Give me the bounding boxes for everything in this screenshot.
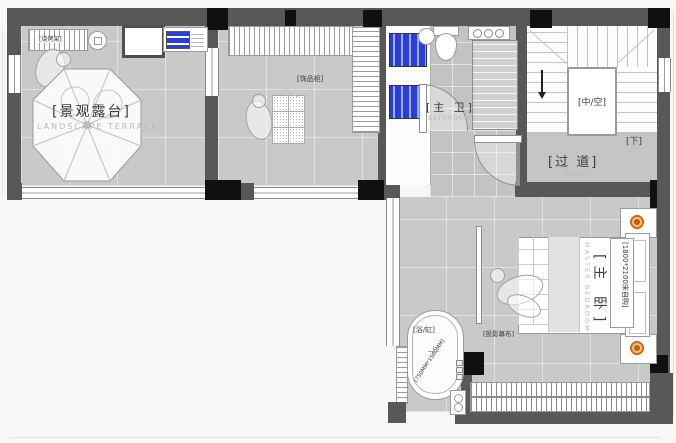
corridor-door-leaf <box>474 135 522 143</box>
column-top-3 <box>363 10 382 27</box>
corridor-label-en: AISLE <box>565 172 587 178</box>
floor-plan: [烧烤架] [景观露台] LANDSCAPE TERRACE [饰品柜] <box>0 0 676 443</box>
switch-panel <box>450 390 466 415</box>
wall-left <box>7 8 21 200</box>
wash-basin <box>418 28 435 45</box>
wall-south-stub <box>241 183 254 200</box>
window-cloakroom-south <box>254 187 358 199</box>
bbq-rack: [烧烤架] <box>28 29 88 51</box>
stair-treads-east <box>613 67 657 133</box>
corridor-label: [过 道] <box>548 156 598 169</box>
window-terrace-south <box>22 187 205 199</box>
stair-void-label: [中/空] <box>578 95 606 108</box>
lamp-north-icon <box>629 214 645 230</box>
terrace-label: [景观露台] <box>52 105 131 119</box>
column-south-2 <box>358 180 384 200</box>
wall-top <box>7 8 670 26</box>
column-ne-corner <box>648 8 670 28</box>
bbq-label: [烧烤架] <box>39 37 62 43</box>
wall-bottom-left-corner <box>7 183 22 200</box>
column-top-2 <box>285 10 296 26</box>
tub-faucet-3 <box>456 374 463 380</box>
bathroom-label: [主 卫] <box>426 102 475 113</box>
wall-bedroom-south <box>455 410 673 424</box>
wall-corridor-bedroom <box>515 182 657 197</box>
bedroom-label-en: MASTER BEDROOM <box>584 242 591 333</box>
stair-treads-west <box>527 26 567 133</box>
bed-note-label: [1800*2100床自购] <box>621 242 628 308</box>
tub-drain-v <box>433 346 434 357</box>
tub-faucet-1 <box>456 360 463 366</box>
stool-inner <box>94 37 102 45</box>
tub-faucet-2 <box>456 367 463 373</box>
column-bedroom-south <box>461 352 484 375</box>
equipment-blue-coils <box>166 31 190 49</box>
bathroom-label-en: BATHROOM <box>428 116 471 122</box>
column-top-1 <box>207 8 228 30</box>
wardrobe-east <box>352 27 380 133</box>
stool <box>88 31 107 50</box>
person-cloakroom-head <box>252 94 266 108</box>
lamp-south-icon <box>629 340 645 356</box>
terrace-label-en: LANDSCAPE TERRACE <box>37 123 159 131</box>
person-terrace-head <box>56 52 71 67</box>
window-terrace-left <box>8 55 21 93</box>
dim-line-left <box>2 30 3 195</box>
window-terrace-cloakroom <box>205 48 219 96</box>
bed-blanket <box>548 237 580 332</box>
projection-screen-label: [投影幕布] <box>483 331 514 338</box>
display-cabinet <box>272 95 304 143</box>
window-stairs-east <box>658 58 671 92</box>
vanity-counter <box>468 26 510 40</box>
dim-line-right <box>673 10 674 418</box>
bedroom-label: [主 卧] <box>592 254 606 327</box>
projection-screen <box>476 226 482 324</box>
bathtub-label: [浴/缸] <box>413 327 435 334</box>
shower-area <box>472 40 518 130</box>
column-south-1 <box>205 180 241 200</box>
stair-void: [中/空] <box>567 67 617 136</box>
stair-down-arrow-icon <box>538 92 546 99</box>
display-cabinet-label: [饰品柜] <box>297 76 323 83</box>
corridor-down-label: [下] <box>626 138 642 147</box>
stair-treads-north <box>567 26 657 67</box>
person-bed-head <box>490 268 505 283</box>
equipment-unit <box>163 27 208 52</box>
stair-direction-line <box>541 70 543 92</box>
dim-line-bottom <box>10 437 660 438</box>
window-seat-hatch <box>470 382 650 412</box>
equipment-vents <box>191 31 204 47</box>
wardrobe-north <box>228 26 354 56</box>
wall-bedroom-sw-corner <box>388 402 406 423</box>
skylight-panel <box>122 25 165 58</box>
window-bedroom-west <box>386 198 400 346</box>
